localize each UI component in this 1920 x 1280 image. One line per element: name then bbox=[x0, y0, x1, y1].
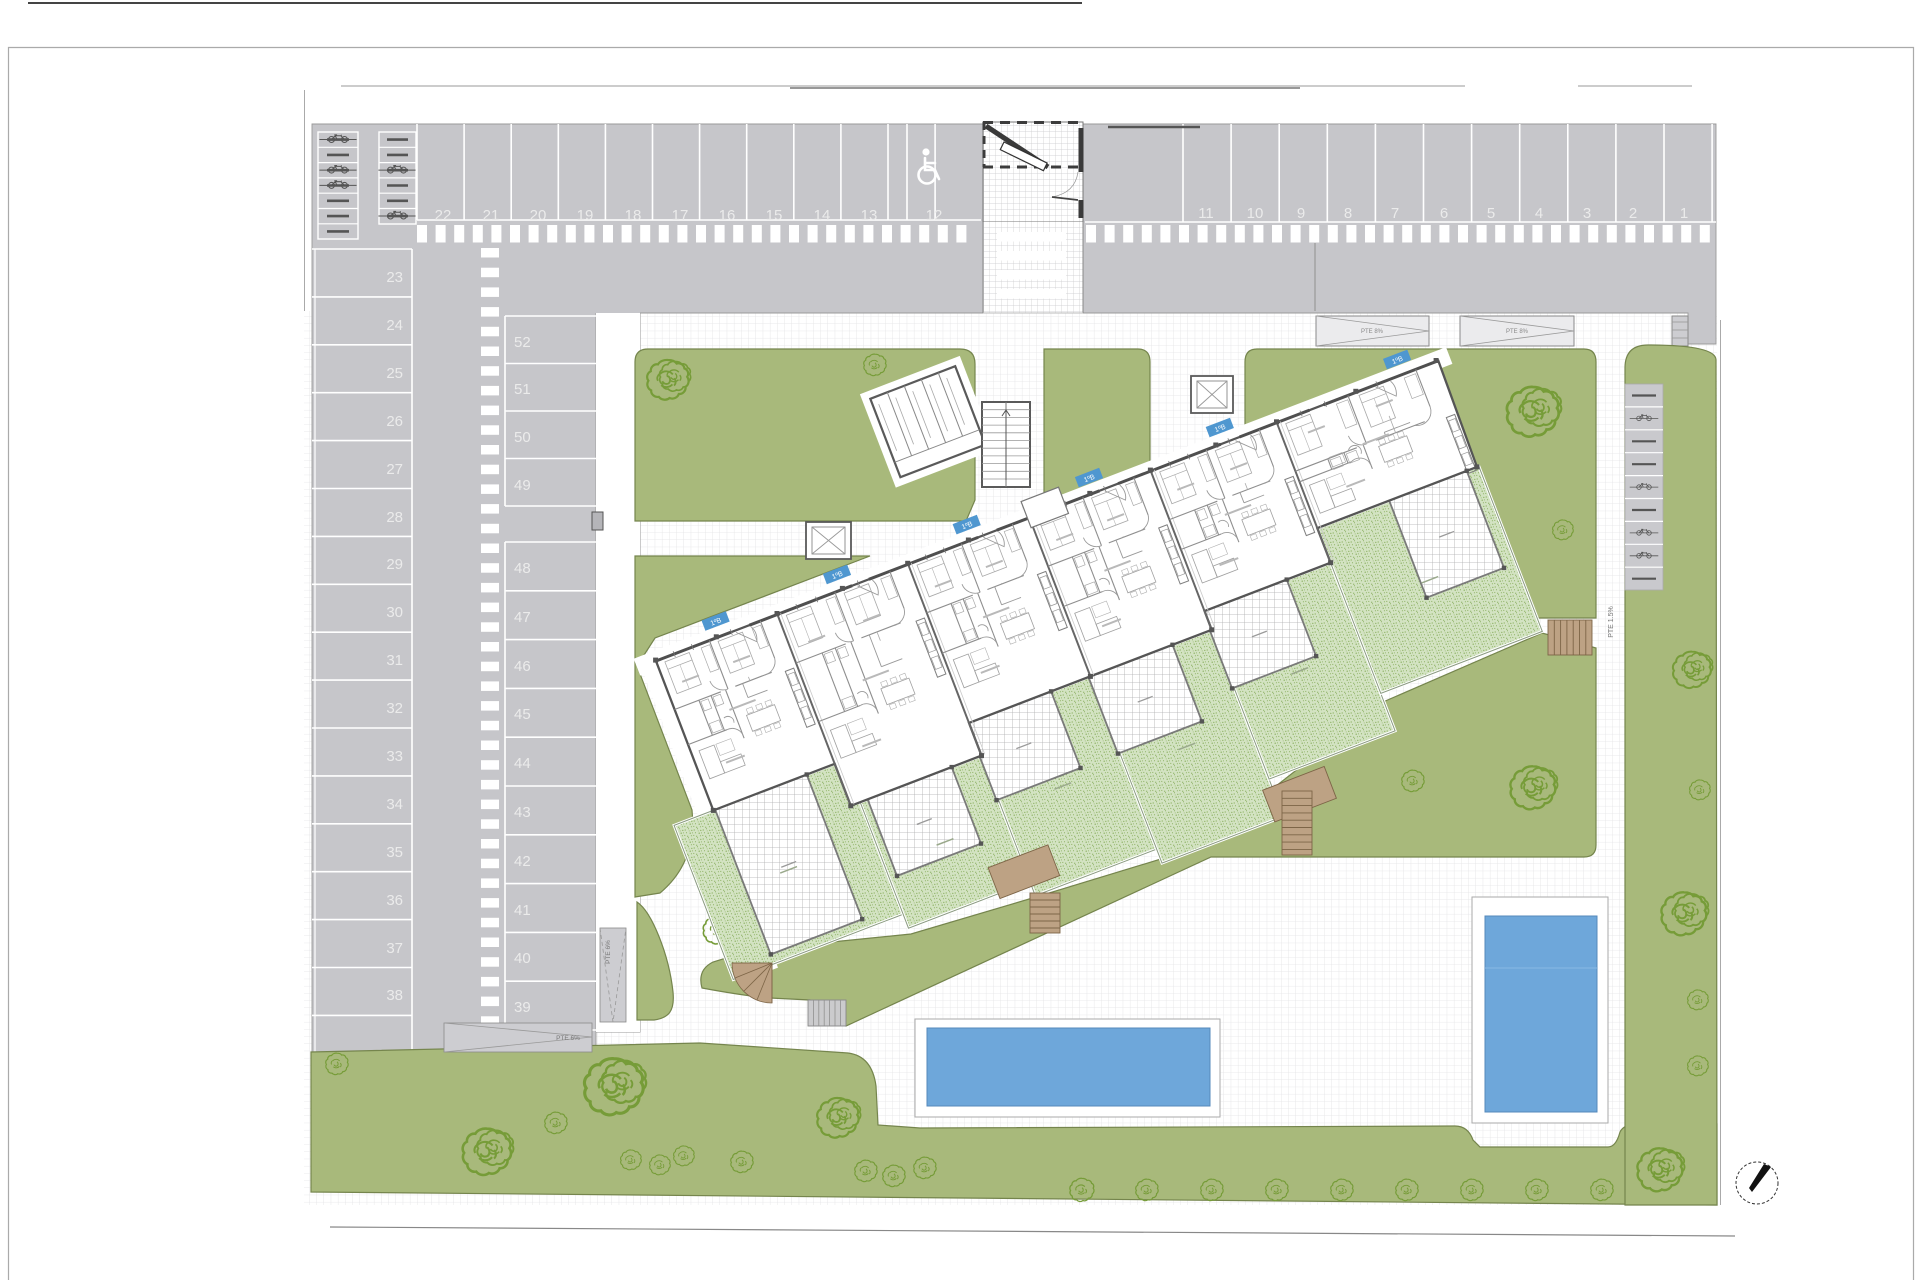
svg-text:46: 46 bbox=[514, 658, 531, 675]
svg-text:25: 25 bbox=[386, 365, 403, 382]
svg-text:32: 32 bbox=[386, 700, 403, 717]
svg-text:38: 38 bbox=[386, 987, 403, 1004]
svg-text:33: 33 bbox=[386, 748, 403, 765]
svg-text:24: 24 bbox=[386, 317, 403, 334]
svg-text:39: 39 bbox=[514, 999, 531, 1016]
svg-text:20: 20 bbox=[530, 207, 547, 224]
svg-text:18: 18 bbox=[625, 207, 642, 224]
svg-text:35: 35 bbox=[386, 844, 403, 861]
svg-text:3: 3 bbox=[1583, 205, 1591, 222]
svg-text:21: 21 bbox=[483, 207, 500, 224]
svg-text:10: 10 bbox=[1247, 205, 1264, 222]
svg-text:52: 52 bbox=[514, 334, 531, 351]
svg-text:37: 37 bbox=[386, 940, 403, 957]
svg-text:41: 41 bbox=[514, 902, 531, 919]
svg-text:15: 15 bbox=[766, 207, 783, 224]
svg-text:8: 8 bbox=[1344, 205, 1352, 222]
svg-text:47: 47 bbox=[514, 609, 531, 626]
svg-text:11: 11 bbox=[1198, 205, 1214, 222]
svg-text:36: 36 bbox=[386, 892, 403, 909]
svg-text:22: 22 bbox=[435, 207, 452, 224]
svg-text:12: 12 bbox=[926, 207, 943, 224]
svg-text:44: 44 bbox=[514, 755, 531, 772]
svg-text:PTE 8%: PTE 8% bbox=[1361, 329, 1384, 335]
svg-text:50: 50 bbox=[514, 429, 531, 446]
svg-text:27: 27 bbox=[386, 461, 403, 478]
svg-text:PTE 6%: PTE 6% bbox=[605, 940, 612, 964]
svg-text:28: 28 bbox=[386, 509, 403, 526]
svg-text:31: 31 bbox=[386, 652, 403, 669]
svg-text:30: 30 bbox=[386, 604, 403, 621]
svg-text:4: 4 bbox=[1535, 205, 1543, 222]
svg-text:43: 43 bbox=[514, 804, 531, 821]
svg-text:23: 23 bbox=[386, 269, 403, 286]
svg-text:PTE 6%: PTE 6% bbox=[556, 1035, 580, 1042]
svg-text:40: 40 bbox=[514, 950, 531, 967]
svg-text:17: 17 bbox=[672, 207, 689, 224]
svg-text:45: 45 bbox=[514, 706, 531, 723]
svg-text:9: 9 bbox=[1297, 205, 1305, 222]
svg-text:16: 16 bbox=[719, 207, 736, 224]
svg-text:2: 2 bbox=[1629, 205, 1637, 222]
svg-text:29: 29 bbox=[386, 556, 403, 573]
svg-text:7: 7 bbox=[1391, 205, 1399, 222]
svg-text:26: 26 bbox=[386, 413, 403, 430]
svg-text:34: 34 bbox=[386, 796, 403, 813]
svg-text:PTE 1.5%: PTE 1.5% bbox=[1608, 606, 1615, 638]
svg-text:14: 14 bbox=[814, 207, 831, 224]
svg-text:1: 1 bbox=[1680, 205, 1688, 222]
svg-text:51: 51 bbox=[514, 381, 531, 398]
svg-text:49: 49 bbox=[514, 477, 531, 494]
svg-text:PTE 8%: PTE 8% bbox=[1506, 329, 1529, 335]
svg-text:48: 48 bbox=[514, 560, 531, 577]
svg-text:5: 5 bbox=[1487, 205, 1495, 222]
svg-text:42: 42 bbox=[514, 853, 531, 870]
svg-text:6: 6 bbox=[1440, 205, 1448, 222]
svg-text:13: 13 bbox=[861, 207, 878, 224]
svg-text:19: 19 bbox=[577, 207, 594, 224]
